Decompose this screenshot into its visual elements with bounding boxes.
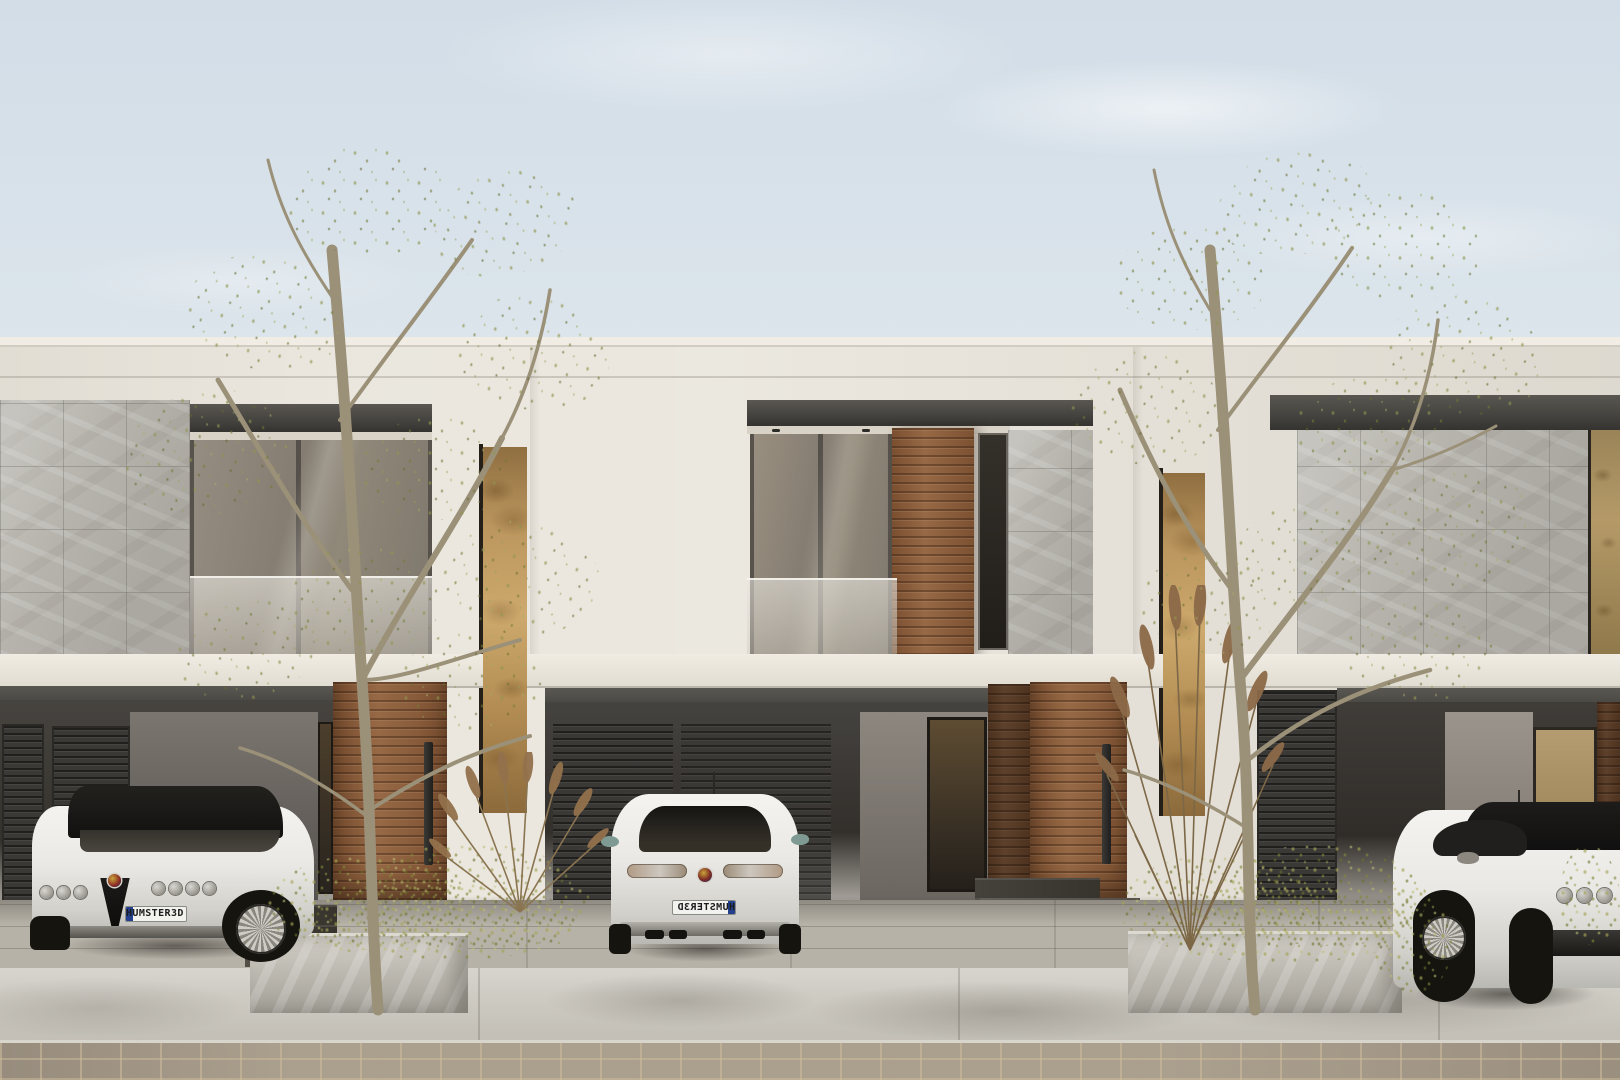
patterned-glass-recess-right [1588, 430, 1620, 656]
timber-panel-middle-balcony [892, 428, 974, 658]
tree-foliage [1345, 600, 1495, 702]
headlight [57, 886, 70, 899]
tree-foliage [1330, 190, 1480, 300]
rear-window [639, 806, 771, 852]
exhaust-tip [669, 930, 688, 939]
headlight-cluster-left [40, 886, 92, 902]
headlight [40, 886, 53, 899]
architectural-render-scene: HUMSTER3D HUMSTER3D [0, 0, 1620, 1080]
wheel-rear-right [779, 924, 801, 954]
plate-number: HUMSTER3D [677, 903, 735, 913]
narrow-entry-window-middle [927, 717, 987, 892]
tree-foliage [400, 630, 545, 730]
downlight [862, 429, 870, 432]
glass-balustrade-middle [747, 578, 897, 658]
exhaust-left-pair [645, 930, 687, 939]
exhaust-tip [723, 930, 742, 939]
exhaust-tip [747, 930, 766, 939]
side-mirror-right [791, 834, 809, 845]
exhaust-tip [645, 930, 664, 939]
downlight [772, 429, 780, 432]
headlight [74, 886, 87, 899]
alfa-badge-rear [698, 868, 712, 882]
cobblestone-street [0, 1040, 1620, 1080]
glass-branch-pattern [1591, 430, 1620, 656]
wheel-front-left [30, 916, 70, 950]
narrow-window-middle-balcony [978, 433, 1008, 650]
tree-foliage [1295, 375, 1445, 478]
license-plate-rear-mirrored: HUMSTER3D [672, 900, 736, 915]
exhaust-right-pair [723, 930, 765, 939]
tail-light-right [723, 864, 783, 878]
balcony-fascia-middle [747, 400, 1093, 426]
